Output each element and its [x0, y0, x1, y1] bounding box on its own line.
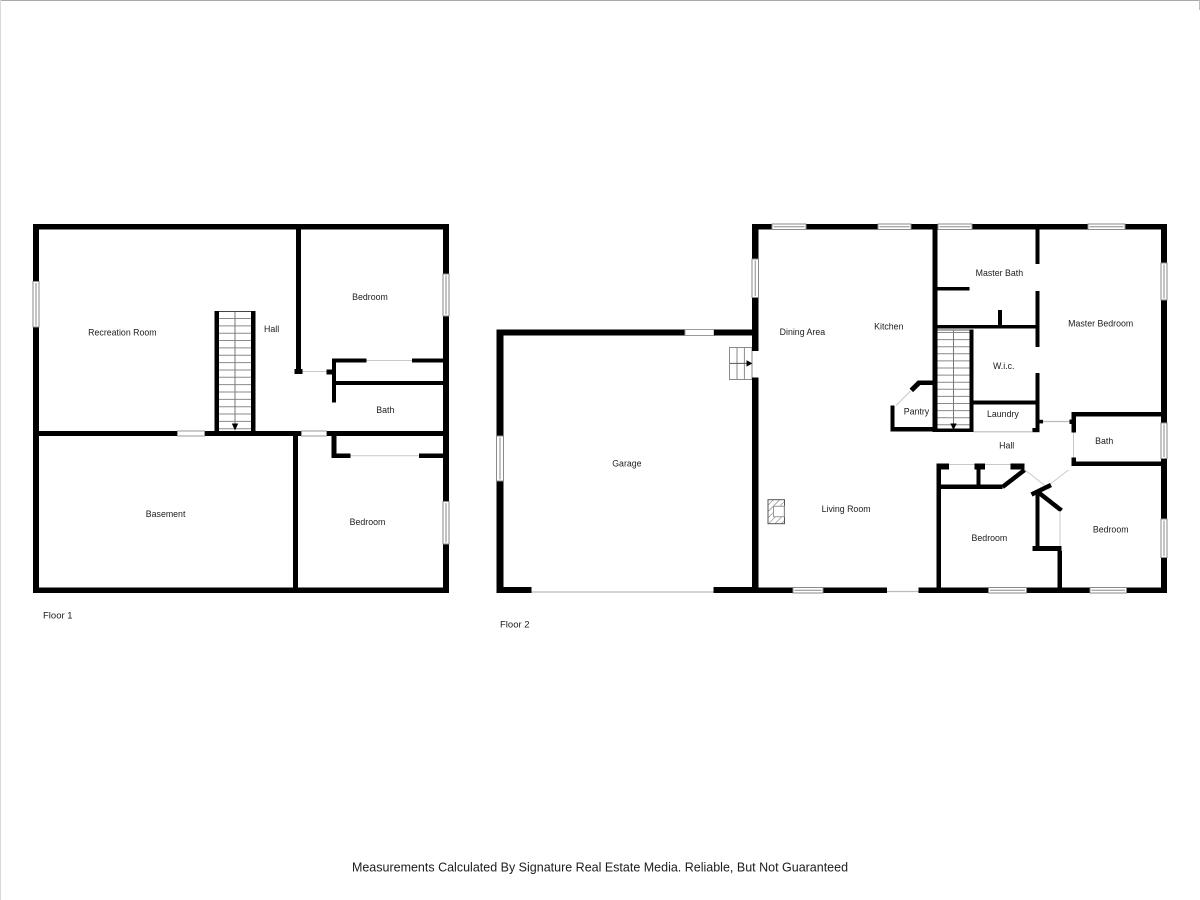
- svg-text:Living Room: Living Room: [822, 504, 871, 514]
- svg-text:Bath: Bath: [376, 405, 394, 415]
- svg-text:Laundry: Laundry: [987, 409, 1019, 419]
- svg-text:Basement: Basement: [146, 509, 186, 519]
- svg-text:Floor 2: Floor 2: [500, 620, 530, 631]
- svg-text:Hall: Hall: [264, 324, 279, 334]
- svg-text:Bedroom: Bedroom: [972, 533, 1008, 543]
- svg-text:Bedroom: Bedroom: [350, 517, 386, 527]
- svg-text:Floor 1: Floor 1: [43, 611, 73, 622]
- svg-text:Pantry: Pantry: [904, 406, 930, 416]
- svg-text:Bedroom: Bedroom: [352, 292, 388, 302]
- svg-text:Master Bedroom: Master Bedroom: [1068, 318, 1133, 328]
- svg-text:W.i.c.: W.i.c.: [993, 361, 1015, 371]
- svg-text:Hall: Hall: [999, 441, 1014, 451]
- svg-text:Dining Area: Dining Area: [780, 327, 826, 337]
- svg-text:Master Bath: Master Bath: [976, 268, 1024, 278]
- svg-text:Bedroom: Bedroom: [1093, 525, 1129, 535]
- svg-text:Garage: Garage: [612, 459, 641, 469]
- svg-text:Bath: Bath: [1095, 436, 1113, 446]
- svg-text:Kitchen: Kitchen: [874, 321, 903, 331]
- svg-text:Recreation Room: Recreation Room: [88, 327, 156, 337]
- svg-text:Measurements Calculated By Sig: Measurements Calculated By Signature Rea…: [352, 861, 848, 875]
